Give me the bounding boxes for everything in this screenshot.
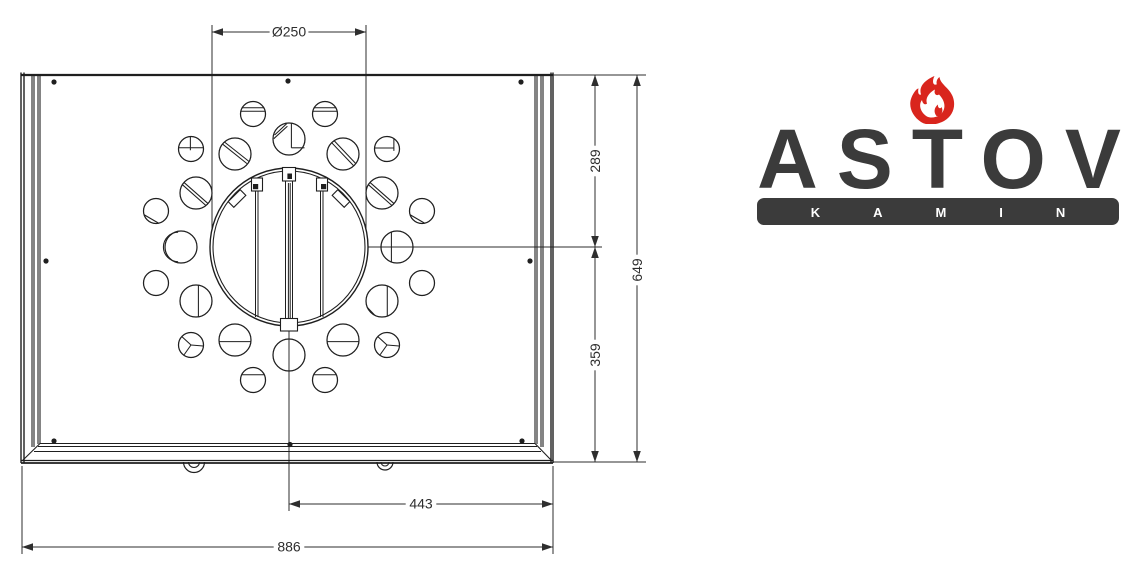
dimension-label: 649 (629, 258, 645, 282)
drawing-sheet: Ø250289359649443886 ASTOV KAMIN (0, 0, 1136, 575)
dimension-label: Ø250 (272, 24, 306, 40)
technical-drawing: Ø250289359649443886 (0, 0, 680, 575)
dimension-label: 443 (409, 496, 433, 512)
kamin-text: KAMIN (811, 205, 1119, 219)
dimension-label: 886 (277, 539, 301, 555)
brand-wordmark: ASTOV (748, 117, 1130, 201)
dimension-label: 289 (587, 149, 603, 173)
brand-text: ASTOV (757, 117, 1136, 201)
kamin-badge: KAMIN (757, 198, 1119, 225)
brand-logo: ASTOV KAMIN (748, 70, 1130, 230)
dimension-label: 359 (587, 343, 603, 367)
